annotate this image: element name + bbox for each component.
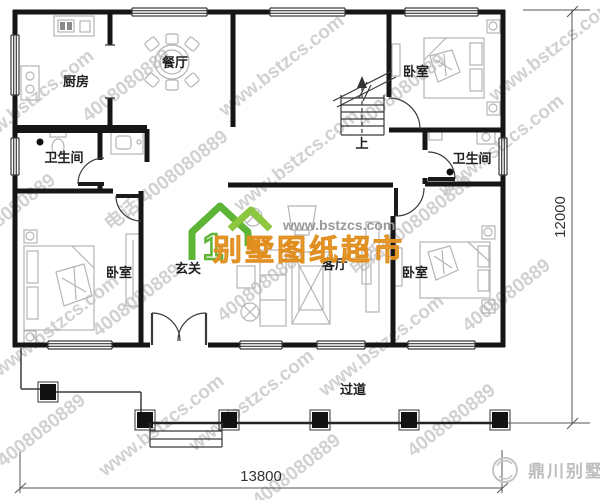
niche-basin — [111, 132, 143, 154]
window-top-1 — [132, 8, 207, 16]
watermark-text: 4008080889 — [0, 170, 60, 252]
watermark-text: 电话:4008080889 — [100, 125, 232, 235]
label-bedroom-bottom-right: 卧室 — [402, 265, 428, 280]
window-bottom-2 — [240, 341, 282, 349]
floor-plan-page: www.bstzcs.com 4008080889 www.bstzcs.com… — [0, 0, 600, 500]
label-dining: 餐厅 — [161, 55, 188, 70]
brand-logo: 鼎川别墅 — [493, 458, 600, 482]
window-bottom-1 — [48, 341, 112, 349]
label-bedroom-top-right: 卧室 — [403, 64, 429, 79]
window-bottom-4 — [408, 341, 475, 349]
brand-name: 鼎川别墅 — [528, 462, 600, 481]
label-bathroom-right: 卫生间 — [452, 151, 491, 166]
dimension-width: 13800 — [240, 468, 282, 485]
stair-direction-arrow — [357, 76, 367, 88]
watermark-text: 4008080889 — [249, 430, 345, 500]
logo-site-url: www.bstzcs.com — [282, 217, 395, 233]
entry-double-door — [152, 313, 206, 345]
watermark-text: 4008080889 — [459, 255, 555, 337]
watermark-text: 4008080889 — [404, 380, 500, 462]
center-logo: 1 www.bstzcs.com 别墅图纸超市 — [192, 206, 405, 267]
label-kitchen: 厨房 — [63, 74, 89, 89]
window-top-3 — [405, 8, 478, 16]
label-corridor: 过道 — [340, 382, 366, 397]
label-foyer: 玄关 — [175, 261, 201, 276]
watermark-text: www.bstzcs.com — [229, 105, 363, 216]
window-bottom-3 — [317, 341, 365, 349]
logo-brand-name: 别墅图纸超市 — [213, 233, 405, 267]
label-stairs-up: 上 — [355, 136, 368, 151]
label-bedroom-bottom-left: 卧室 — [106, 265, 132, 280]
label-bathroom-left: 卫生间 — [44, 150, 83, 165]
window-left-kitchen — [11, 35, 19, 95]
floor-plan-canvas: www.bstzcs.com 4008080889 www.bstzcs.com… — [0, 0, 600, 500]
window-left-bathroom — [11, 138, 19, 175]
dimension-height: 12000 — [552, 196, 569, 238]
